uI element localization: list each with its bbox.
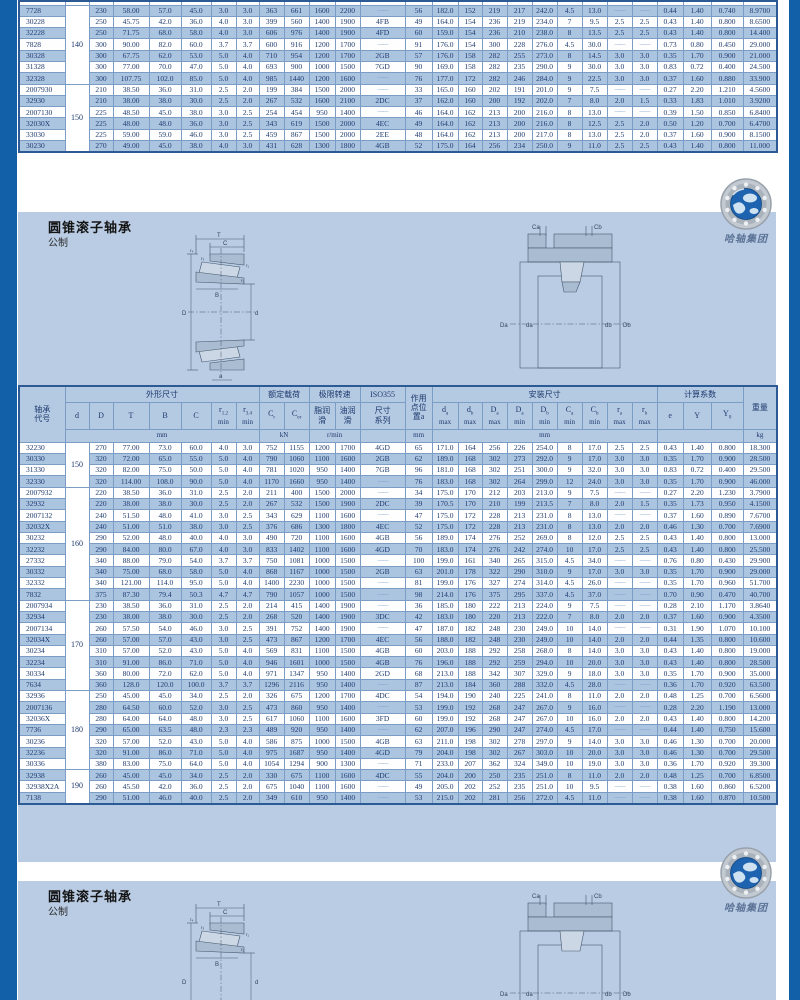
value-cell: 1.40 bbox=[683, 16, 711, 27]
header-cell: Dbmin bbox=[532, 402, 557, 429]
value-cell: 4.3500 bbox=[743, 611, 777, 622]
value-cell: 2.5 bbox=[211, 95, 236, 106]
value-cell: 13.000 bbox=[743, 532, 777, 543]
value-cell: 164.0 bbox=[432, 118, 458, 129]
value-cell: 58.00 bbox=[113, 5, 149, 16]
value-cell: 290 bbox=[89, 724, 113, 735]
bearing-code-cell: 7728 bbox=[19, 5, 65, 16]
value-cell: 4.0 bbox=[236, 465, 259, 476]
value-cell: 247 bbox=[507, 713, 532, 724]
bearing-section-drawing: T C D d B r₄ r₃ r₁ r₂ bbox=[158, 901, 273, 1000]
bearing-code-cell: 7138 bbox=[19, 792, 65, 803]
table-row: 3293021038.0038.030.02.52.02675321600210… bbox=[19, 95, 777, 106]
value-cell: 2.5 bbox=[632, 141, 657, 152]
value-cell: 2.20 bbox=[683, 487, 711, 498]
value-cell: 5.0 bbox=[211, 758, 236, 769]
value-cell: 96 bbox=[405, 465, 432, 476]
value-cell: 1.70 bbox=[683, 578, 711, 589]
bearing-code-cell: 32332 bbox=[19, 578, 65, 589]
main-table-header: 轴承代号外形尺寸额定载荷极限转速ISO355作用点位置a安装尺寸计算系数重量dD… bbox=[19, 386, 777, 442]
table-row: 32034X26057.0057.043.03.02.5473867120017… bbox=[19, 634, 777, 645]
value-cell: 189.0 bbox=[432, 453, 458, 464]
value-cell: 9 bbox=[557, 487, 582, 498]
value-cell: 255 bbox=[507, 50, 532, 61]
value-cell: 205.0 bbox=[432, 781, 458, 792]
value-cell: 0.800 bbox=[711, 544, 743, 555]
value-cell: 14.0 bbox=[582, 645, 607, 656]
value-cell: 3.0 bbox=[236, 532, 259, 543]
value-cell: 162.0 bbox=[432, 95, 458, 106]
table-row: 3293618025045.0045.034.02.52.03266751200… bbox=[19, 691, 777, 702]
bearing-code-cell: 32934 bbox=[19, 611, 65, 622]
value-cell: 1500 bbox=[335, 566, 360, 577]
value-cell: 252 bbox=[482, 781, 507, 792]
value-cell: 0.43 bbox=[657, 645, 683, 656]
value-cell: 8.1500 bbox=[743, 129, 777, 140]
value-cell: 13.0 bbox=[582, 521, 607, 532]
value-cell: 1400 bbox=[335, 702, 360, 713]
value-cell: 2.0 bbox=[236, 487, 259, 498]
value-cell: 1.60 bbox=[683, 73, 711, 84]
dim-label-T: T bbox=[217, 902, 221, 908]
value-cell: 4GB bbox=[360, 141, 405, 152]
value-cell: 49.00 bbox=[113, 141, 149, 152]
value-cell: 7 bbox=[557, 611, 582, 622]
table-row: 3132830077.0070.047.05.04.06939001000150… bbox=[19, 61, 777, 72]
main-table-body: 3223015027077.0073.060.04.03.07521155120… bbox=[19, 442, 777, 804]
value-cell: 8 bbox=[557, 645, 582, 656]
header-cell: 计算系数 bbox=[657, 386, 743, 402]
value-cell: 251.0 bbox=[532, 781, 557, 792]
value-cell: 57.0 bbox=[149, 634, 181, 645]
value-cell: 158 bbox=[458, 61, 482, 72]
value-cell: 3.0 bbox=[632, 61, 657, 72]
value-cell: 3.0 bbox=[236, 544, 259, 555]
value-cell: 24.0 bbox=[582, 476, 607, 487]
value-cell: 3.0 bbox=[607, 453, 632, 464]
value-cell: 302 bbox=[482, 736, 507, 747]
value-cell: 225 bbox=[507, 691, 532, 702]
value-cell: 175.0 bbox=[432, 521, 458, 532]
table-row: 32328300107.75102.085.05.04.098514401200… bbox=[19, 73, 777, 84]
value-cell: 26.0 bbox=[582, 578, 607, 589]
value-cell: 0.37 bbox=[657, 510, 683, 521]
value-cell: 272.0 bbox=[532, 792, 557, 803]
value-cell: 2GB bbox=[360, 50, 405, 61]
value-cell: 1081 bbox=[284, 555, 309, 566]
value-cell: 214 bbox=[259, 600, 284, 611]
value-cell: 4FD bbox=[360, 28, 405, 39]
dim-label-r3: r₃ bbox=[201, 256, 204, 261]
value-cell: 38.50 bbox=[113, 487, 149, 498]
header-cell: d bbox=[65, 402, 89, 429]
value-cell: 198 bbox=[458, 736, 482, 747]
value-cell: 77.00 bbox=[113, 442, 149, 453]
value-cell: 14.0 bbox=[582, 634, 607, 645]
value-cell: 10 bbox=[557, 623, 582, 634]
value-cell: 0.70 bbox=[657, 589, 683, 600]
value-cell: 2.5 bbox=[211, 781, 236, 792]
value-cell: 1600 bbox=[335, 73, 360, 84]
value-cell: 300 bbox=[89, 39, 113, 50]
value-cell: 211 bbox=[259, 487, 284, 498]
value-cell: 2.5 bbox=[211, 691, 236, 702]
bearing-code-cell: 32236 bbox=[19, 747, 65, 758]
value-cell: 172 bbox=[458, 510, 482, 521]
value-cell: 86.0 bbox=[149, 747, 181, 758]
value-cell: 220 bbox=[482, 611, 507, 622]
value-cell: 45.0 bbox=[149, 691, 181, 702]
value-cell: 3.0 bbox=[211, 107, 236, 118]
value-cell: 490 bbox=[259, 532, 284, 543]
bore-diameter-cell: 180 bbox=[65, 691, 89, 770]
value-cell: 0.37 bbox=[657, 129, 683, 140]
value-cell: —— bbox=[632, 555, 657, 566]
value-cell: 32.0 bbox=[582, 465, 607, 476]
value-cell: 299.0 bbox=[532, 476, 557, 487]
value-cell: 45.0 bbox=[181, 5, 211, 16]
value-cell: 172 bbox=[458, 73, 482, 84]
dim-label-a: a bbox=[219, 374, 223, 380]
value-cell: 1200 bbox=[309, 73, 335, 84]
value-cell: 28.500 bbox=[743, 657, 777, 668]
value-cell: 17.0 bbox=[582, 442, 607, 453]
value-cell: 11.0 bbox=[582, 792, 607, 803]
table-row: 32036X28064.0064.048.03.02.5617106011001… bbox=[19, 713, 777, 724]
value-cell: 52.00 bbox=[113, 532, 149, 543]
table-row: 200713426057.5054.046.03.02.539175214001… bbox=[19, 623, 777, 634]
value-cell: 278 bbox=[507, 736, 532, 747]
value-cell: 2.5 bbox=[607, 16, 632, 27]
table-row: 32032X24051.0051.038.03.02.5376686130018… bbox=[19, 521, 777, 532]
value-cell: 1800 bbox=[335, 141, 360, 152]
value-cell: —— bbox=[607, 107, 632, 118]
value-cell: 49 bbox=[405, 781, 432, 792]
value-cell: 60.0 bbox=[181, 39, 211, 50]
value-cell: 100.0 bbox=[181, 679, 211, 690]
value-cell: 9 bbox=[557, 702, 582, 713]
value-cell: 1.190 bbox=[711, 702, 743, 713]
header-cell: e bbox=[657, 402, 683, 429]
table-row: 200713224051.5048.041.03.02.534362911001… bbox=[19, 510, 777, 521]
value-cell: 260 bbox=[89, 781, 113, 792]
value-cell: 228 bbox=[482, 521, 507, 532]
value-cell: 20.0 bbox=[582, 657, 607, 668]
value-cell: 292 bbox=[482, 645, 507, 656]
value-cell: 219 bbox=[507, 16, 532, 27]
value-cell: 0.28 bbox=[657, 600, 683, 611]
dim-label-d: d bbox=[255, 311, 258, 317]
value-cell: 3.0 bbox=[632, 73, 657, 84]
value-cell: 202.0 bbox=[532, 95, 557, 106]
value-cell: 282 bbox=[482, 50, 507, 61]
value-cell: 81 bbox=[405, 578, 432, 589]
bearing-code-cell: 32330 bbox=[19, 476, 65, 487]
value-cell: 3.7 bbox=[211, 39, 236, 50]
value-cell: 3.0 bbox=[607, 736, 632, 747]
value-cell: 2.5 bbox=[236, 118, 259, 129]
value-cell: 58.0 bbox=[181, 28, 211, 39]
header-cell: D bbox=[89, 402, 113, 429]
value-cell: 48.0 bbox=[181, 724, 211, 735]
value-cell: 240 bbox=[89, 521, 113, 532]
value-cell: 170 bbox=[458, 498, 482, 509]
value-cell: —— bbox=[360, 487, 405, 498]
value-cell: 22.5 bbox=[582, 73, 607, 84]
value-cell: 2.3 bbox=[236, 724, 259, 735]
value-cell: 199.0 bbox=[432, 555, 458, 566]
value-cell: 76 bbox=[405, 476, 432, 487]
table-row: 3222825071.7568.058.04.03.06069761400190… bbox=[19, 28, 777, 39]
value-cell: 48 bbox=[405, 129, 432, 140]
value-cell: 200 bbox=[482, 95, 507, 106]
value-cell: 76 bbox=[405, 657, 432, 668]
value-cell: 188 bbox=[458, 657, 482, 668]
section-subtitle: 公制 bbox=[48, 234, 68, 249]
value-cell: 235 bbox=[507, 770, 532, 781]
value-cell: 60.0 bbox=[149, 702, 181, 713]
value-cell: 2.0 bbox=[236, 611, 259, 622]
value-cell: 270 bbox=[89, 442, 113, 453]
value-cell: 65.00 bbox=[113, 724, 149, 735]
table-row: 200713628064.5060.052.03.02.547386095014… bbox=[19, 702, 777, 713]
value-cell: 1700 bbox=[335, 634, 360, 645]
value-cell: 532 bbox=[284, 95, 309, 106]
value-cell: 238.0 bbox=[532, 28, 557, 39]
value-cell: 320 bbox=[89, 736, 113, 747]
value-cell: 7 bbox=[557, 16, 582, 27]
value-cell: 64.0 bbox=[149, 713, 181, 724]
value-cell: —— bbox=[607, 555, 632, 566]
value-cell: 9 bbox=[557, 668, 582, 679]
value-cell: 2.5 bbox=[211, 792, 236, 803]
value-cell: 1.5 bbox=[632, 498, 657, 509]
table-row: 782830090.0082.060.03.73.760091612001700… bbox=[19, 39, 777, 50]
value-cell: 1900 bbox=[335, 611, 360, 622]
value-cell: 250.0 bbox=[532, 141, 557, 152]
value-cell: 1057 bbox=[284, 589, 309, 600]
value-cell: 1.010 bbox=[711, 95, 743, 106]
value-cell: —— bbox=[360, 589, 405, 600]
value-cell: 2.3 bbox=[211, 724, 236, 735]
value-cell: 220 bbox=[89, 498, 113, 509]
value-cell: 4EC bbox=[360, 634, 405, 645]
value-cell: 75.0 bbox=[149, 465, 181, 476]
value-cell: 0.27 bbox=[657, 84, 683, 95]
value-cell: 342 bbox=[482, 668, 507, 679]
value-cell: 1.40 bbox=[683, 724, 711, 735]
value-cell: 11.0 bbox=[582, 691, 607, 702]
value-cell: 569 bbox=[259, 645, 284, 656]
value-cell: 900 bbox=[284, 61, 309, 72]
value-cell: 1600 bbox=[335, 544, 360, 555]
value-cell: 0.39 bbox=[657, 107, 683, 118]
value-cell: 1100 bbox=[309, 453, 335, 464]
value-cell: 284.0 bbox=[532, 73, 557, 84]
value-cell: 900 bbox=[309, 758, 335, 769]
value-cell: 7.6900 bbox=[743, 521, 777, 532]
value-cell: 1040 bbox=[284, 781, 309, 792]
value-cell: —— bbox=[360, 600, 405, 611]
value-cell: 67.0 bbox=[181, 544, 211, 555]
value-cell: 489 bbox=[259, 724, 284, 735]
value-cell: 14.0 bbox=[582, 736, 607, 747]
value-cell: 273.0 bbox=[532, 50, 557, 61]
value-cell: 867 bbox=[284, 634, 309, 645]
value-cell: 1294 bbox=[284, 758, 309, 769]
value-cell: 4.0 bbox=[236, 453, 259, 464]
value-cell: 38.00 bbox=[113, 498, 149, 509]
value-cell: 213.0 bbox=[432, 679, 458, 690]
value-cell: 606 bbox=[259, 28, 284, 39]
value-cell: 5.0 bbox=[211, 578, 236, 589]
value-cell: 0.72 bbox=[683, 61, 711, 72]
value-cell: 46.0 bbox=[181, 129, 211, 140]
value-cell: 1500 bbox=[309, 118, 335, 129]
value-cell: 7.5 bbox=[582, 600, 607, 611]
value-cell: 290 bbox=[89, 532, 113, 543]
value-cell: 8.0 bbox=[582, 611, 607, 622]
value-cell: 87.30 bbox=[113, 589, 149, 600]
bearing-globe-icon bbox=[719, 846, 773, 900]
value-cell: 2.0 bbox=[607, 713, 632, 724]
header-cell: r1.2min bbox=[211, 402, 236, 429]
value-cell: 3.0 bbox=[607, 668, 632, 679]
value-cell: 1.70 bbox=[683, 679, 711, 690]
value-cell: 247 bbox=[507, 702, 532, 713]
dim-label-r3: r₃ bbox=[201, 925, 204, 930]
value-cell: 2.0 bbox=[632, 713, 657, 724]
value-cell: 1500 bbox=[335, 736, 360, 747]
value-cell: —— bbox=[632, 578, 657, 589]
bearing-code-cell: 32232 bbox=[19, 544, 65, 555]
value-cell: 71 bbox=[405, 758, 432, 769]
value-cell: 154 bbox=[458, 39, 482, 50]
value-cell: 43.0 bbox=[181, 736, 211, 747]
value-cell: 250 bbox=[89, 691, 113, 702]
value-cell: 2.5 bbox=[607, 141, 632, 152]
value-cell: 79.0 bbox=[149, 555, 181, 566]
value-cell: 177.0 bbox=[432, 73, 458, 84]
value-cell: 2.0 bbox=[607, 498, 632, 509]
value-cell: 200 bbox=[507, 118, 532, 129]
table-row: 32330320114.00108.090.05.04.011701660950… bbox=[19, 476, 777, 487]
value-cell: 0.960 bbox=[711, 578, 743, 589]
header-cell: T bbox=[113, 402, 149, 429]
value-cell: 1900 bbox=[335, 623, 360, 634]
value-cell: 340 bbox=[482, 555, 507, 566]
value-cell: 1.070 bbox=[711, 623, 743, 634]
value-cell: 62 bbox=[405, 453, 432, 464]
value-cell: 56 bbox=[405, 532, 432, 543]
table-row: 3223431091.0086.071.05.04.09461601100015… bbox=[19, 657, 777, 668]
value-cell: 950 bbox=[309, 668, 335, 679]
value-cell: 0.400 bbox=[711, 465, 743, 476]
value-cell: —— bbox=[632, 487, 657, 498]
value-cell: 230 bbox=[89, 5, 113, 16]
value-cell: 302 bbox=[482, 453, 507, 464]
value-cell: 1400 bbox=[309, 623, 335, 634]
value-cell: 38.00 bbox=[113, 611, 149, 622]
value-cell: 282 bbox=[482, 61, 507, 72]
value-cell: 1200 bbox=[309, 634, 335, 645]
value-cell: 2.5 bbox=[211, 611, 236, 622]
value-cell: —— bbox=[632, 5, 657, 16]
value-cell: 222.0 bbox=[532, 611, 557, 622]
value-cell: 79.4 bbox=[149, 589, 181, 600]
value-cell: 48.50 bbox=[113, 107, 149, 118]
value-cell: 2.0 bbox=[632, 118, 657, 129]
value-cell: 2.0 bbox=[236, 792, 259, 803]
value-cell: 315.0 bbox=[532, 555, 557, 566]
value-cell: 9 bbox=[557, 73, 582, 84]
value-cell: 250 bbox=[482, 770, 507, 781]
value-cell: 2.20 bbox=[683, 702, 711, 713]
value-cell: 1.210 bbox=[711, 84, 743, 95]
value-cell: 0.43 bbox=[657, 713, 683, 724]
value-cell: 0.880 bbox=[711, 73, 743, 84]
value-cell: 2.5 bbox=[632, 442, 657, 453]
value-cell: 196 bbox=[458, 724, 482, 735]
value-cell: 207.0 bbox=[432, 724, 458, 735]
value-cell: 48.0 bbox=[149, 510, 181, 521]
value-cell: 36.0 bbox=[149, 487, 181, 498]
value-cell: 249.0 bbox=[532, 634, 557, 645]
value-cell: 204.0 bbox=[432, 770, 458, 781]
value-cell: 1200 bbox=[309, 39, 335, 50]
value-cell: 3.0 bbox=[236, 442, 259, 453]
value-cell: 174 bbox=[458, 532, 482, 543]
value-cell: 4.0 bbox=[236, 645, 259, 656]
dim-label-Cb: Cb bbox=[594, 894, 602, 900]
table-row: 3033638083.0075.064.05.04.01054129490013… bbox=[19, 758, 777, 769]
value-cell: —— bbox=[607, 5, 632, 16]
value-cell: 80.0 bbox=[149, 544, 181, 555]
value-cell: 1.70 bbox=[683, 566, 711, 577]
value-cell: 49 bbox=[405, 16, 432, 27]
value-cell: 1900 bbox=[335, 498, 360, 509]
value-cell: 90 bbox=[405, 61, 432, 72]
value-cell: 199 bbox=[507, 498, 532, 509]
value-cell: 0.800 bbox=[711, 713, 743, 724]
value-cell: 236 bbox=[482, 28, 507, 39]
value-cell: 1000 bbox=[309, 736, 335, 747]
value-cell: 50.0 bbox=[181, 465, 211, 476]
table-row: 3033436080.0072.062.05.04.09711347950140… bbox=[19, 668, 777, 679]
value-cell: 39.300 bbox=[743, 758, 777, 769]
value-cell: 1600 bbox=[335, 510, 360, 521]
value-cell: 1000 bbox=[309, 566, 335, 577]
value-cell: 235 bbox=[507, 61, 532, 72]
value-cell: 661 bbox=[284, 5, 309, 16]
value-cell: 231.0 bbox=[532, 510, 557, 521]
bearing-code-cell: 2007134 bbox=[19, 623, 65, 634]
company-name: 哈轴集团 bbox=[714, 230, 778, 245]
value-cell: 0.800 bbox=[711, 532, 743, 543]
value-cell: 2GB bbox=[360, 566, 405, 577]
table-row: 200793417023038.5036.031.02.52.021441514… bbox=[19, 600, 777, 611]
value-cell: 45.0 bbox=[149, 770, 181, 781]
value-cell: 234 bbox=[507, 141, 532, 152]
value-cell: 1.70 bbox=[683, 476, 711, 487]
top-table-body: 772814023058.0057.045.03.03.036366116002… bbox=[19, 1, 777, 152]
value-cell: —— bbox=[632, 600, 657, 611]
dim-label-da: da bbox=[526, 323, 533, 329]
value-cell: 240 bbox=[482, 691, 507, 702]
value-cell: 300 bbox=[482, 39, 507, 50]
value-cell: 38.0 bbox=[181, 521, 211, 532]
value-cell: 213 bbox=[507, 521, 532, 532]
